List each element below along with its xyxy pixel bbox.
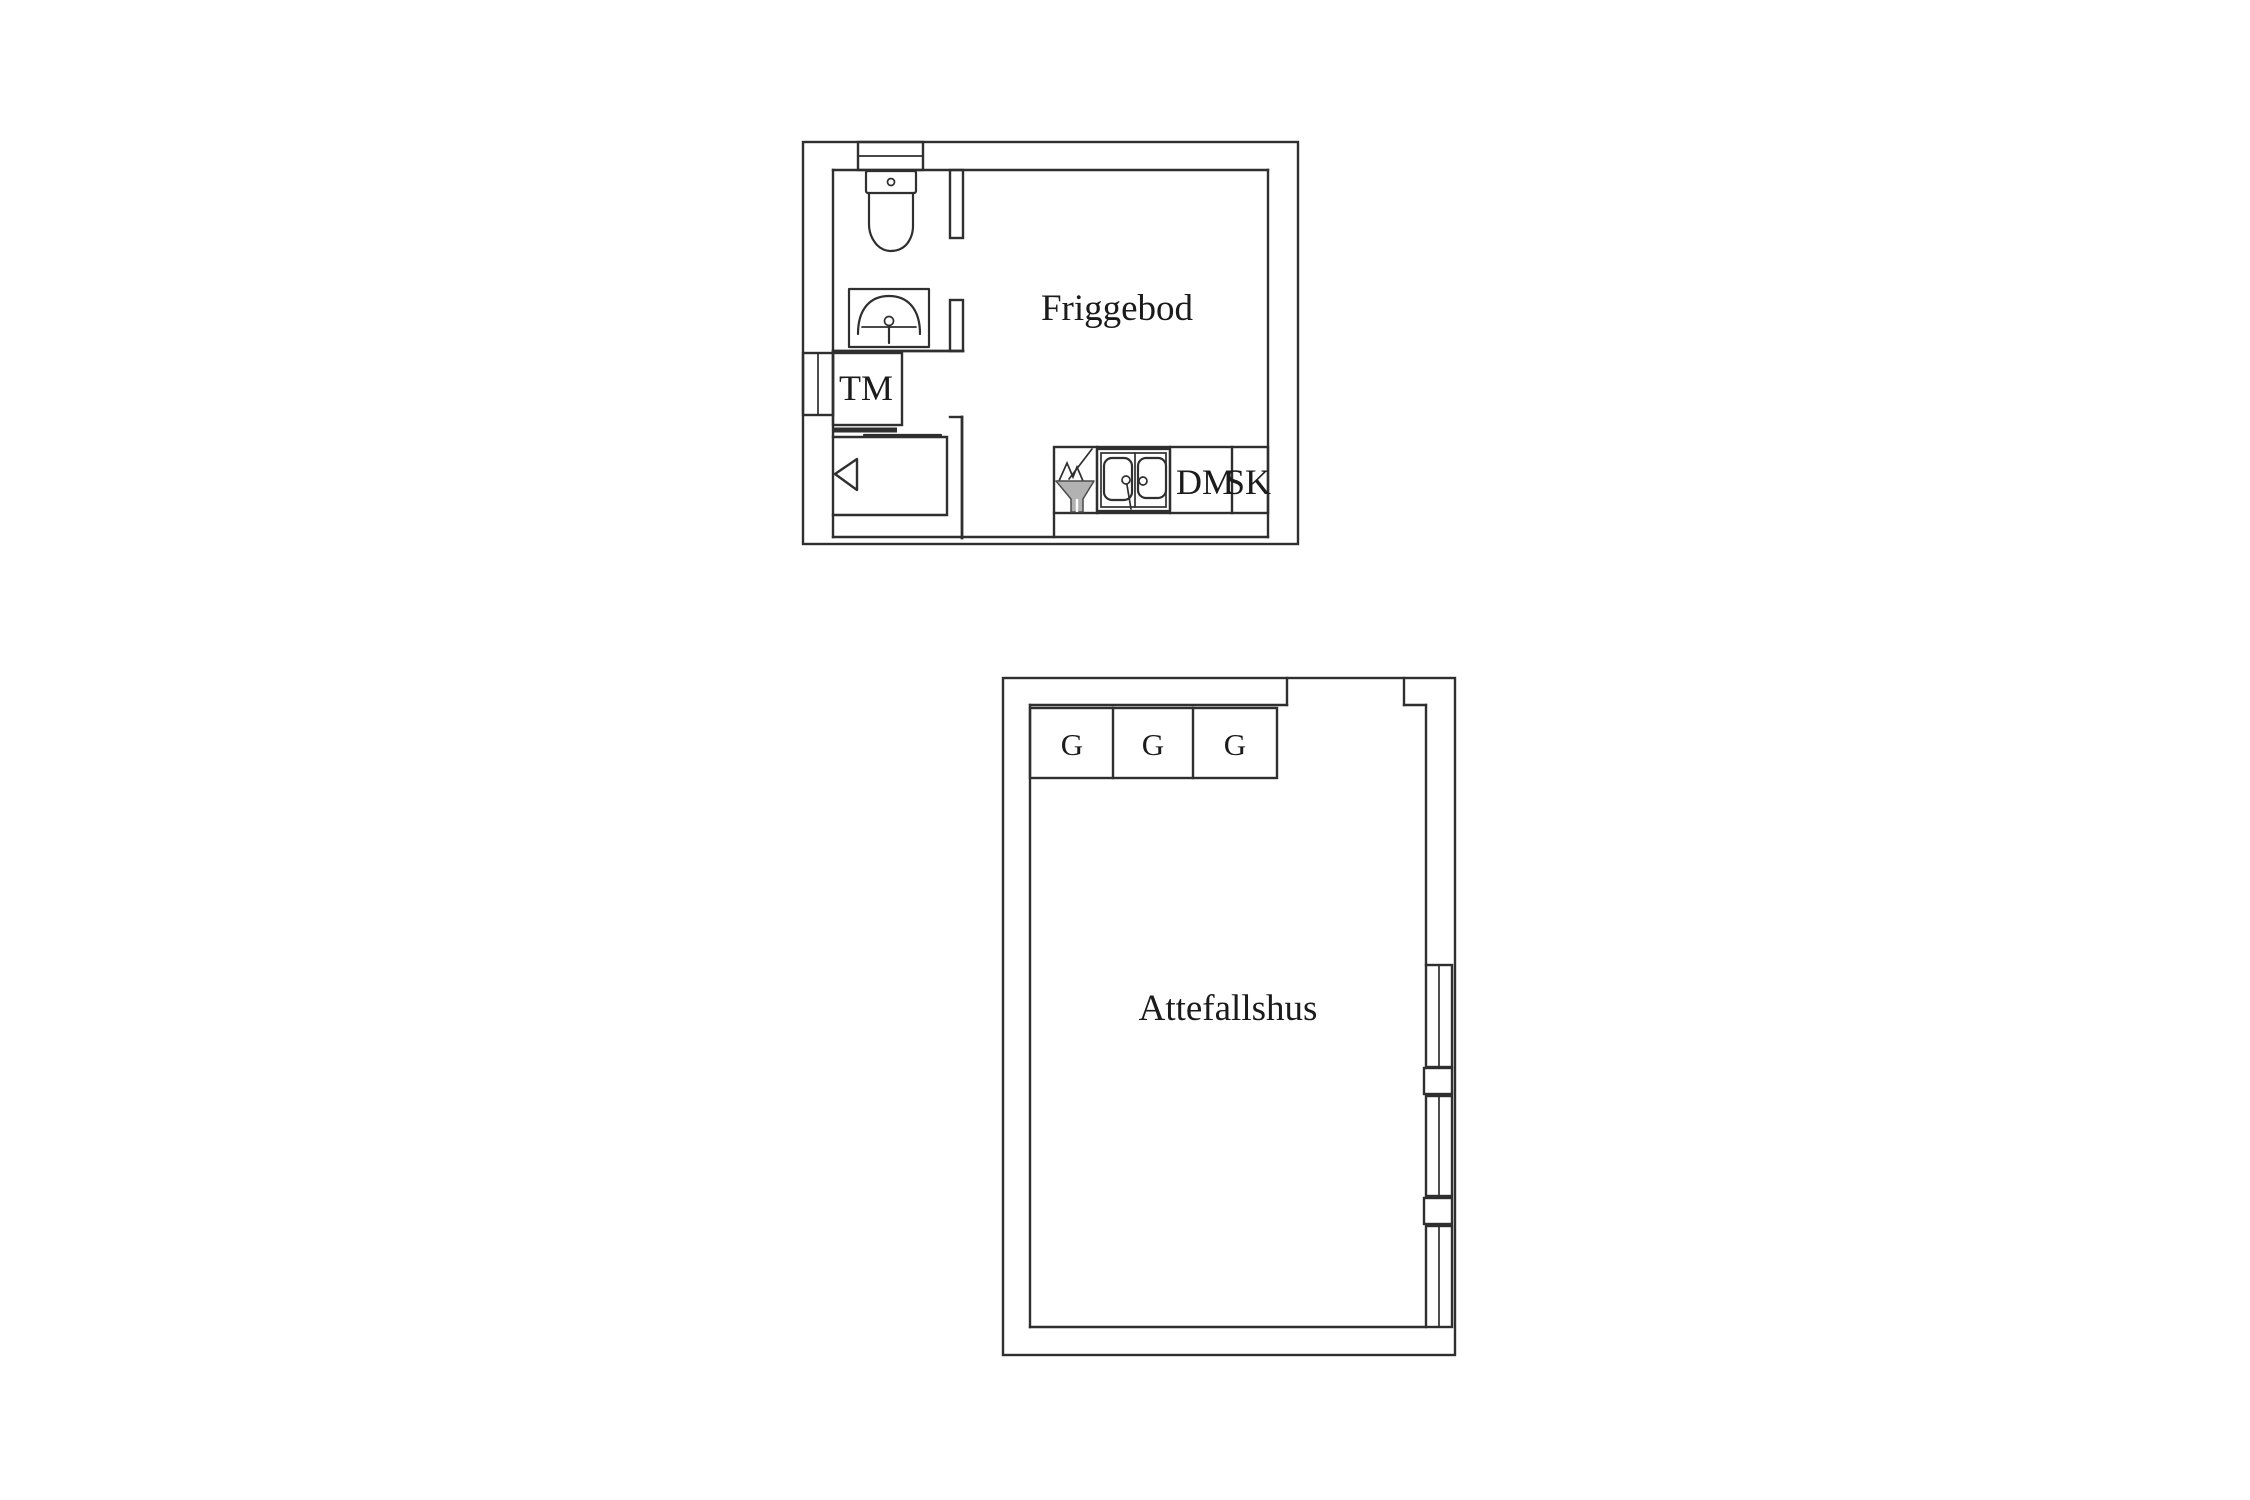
friggebod-room-label: Friggebod [1041,288,1194,329]
window-icon [1426,1226,1452,1327]
washbasin-icon [849,289,929,347]
wall-pier [1424,1198,1452,1224]
cabinet-label: SK [1225,462,1271,502]
washing-machine-label: TM [839,368,893,408]
floor-drain-icon [1056,449,1094,512]
toilet-icon [866,171,916,251]
floor-plan-drawing: TM [0,0,2250,1500]
wardrobe-label: G [1142,727,1164,762]
window-icon [1426,965,1452,1067]
entry-door-swing-icon [835,459,857,490]
floor-plan-page: TM [0,0,2250,1500]
attefallshus-plan: G G G Attefallshus [1003,678,1455,1355]
window-icon [858,142,923,170]
kitchen-sink-icon [1097,449,1170,511]
sliding-door-icon [833,430,941,435]
wardrobe-label: G [1061,727,1083,762]
attefallshus-room-label: Attefallshus [1139,988,1318,1029]
window-icon [803,353,833,415]
wall-pier [1424,1068,1452,1094]
wardrobe-label: G [1224,727,1246,762]
friggebod-plan: TM [803,142,1298,544]
window-icon [1426,1096,1452,1196]
